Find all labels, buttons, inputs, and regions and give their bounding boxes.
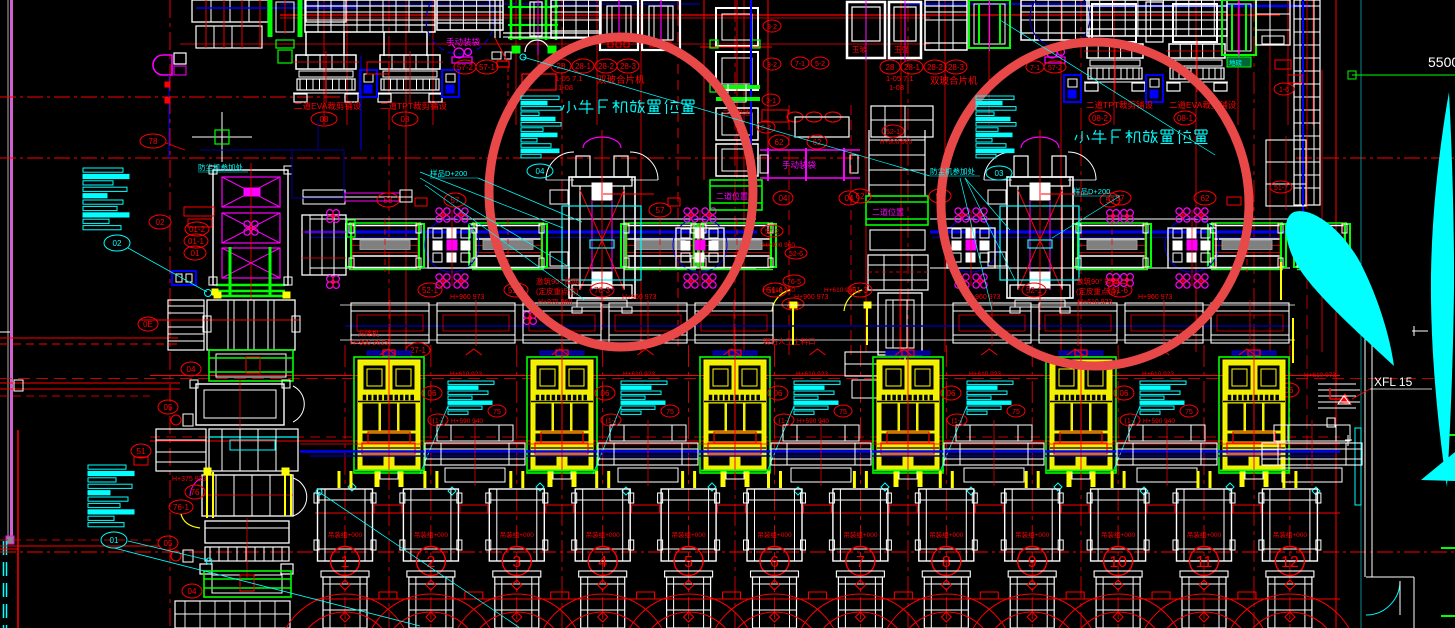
svg-text:(1-): (1-): [952, 418, 963, 425]
svg-text:10: 10: [1109, 554, 1127, 571]
svg-text:51-3: 51-3: [852, 286, 869, 295]
svg-text:1-08: 1-08: [558, 83, 573, 92]
svg-text:06: 06: [947, 389, 956, 398]
svg-text:5-2: 5-2: [815, 61, 825, 68]
svg-text:3-2: 3-2: [767, 62, 777, 69]
svg-text:75: 75: [839, 409, 847, 416]
svg-text:H+610 923: H+610 923: [450, 371, 482, 378]
svg-text:样品D+200: 样品D+200: [430, 168, 467, 178]
svg-text:28-3: 28-3: [620, 62, 637, 71]
svg-text:75: 75: [1185, 409, 1193, 416]
svg-text:H+610 923: H+610 923: [623, 371, 655, 378]
svg-text:02: 02: [113, 239, 122, 248]
svg-text:样品D+200: 样品D+200: [1073, 186, 1110, 196]
svg-text:28: 28: [886, 63, 895, 72]
svg-text:01: 01: [191, 249, 200, 258]
svg-text:08: 08: [320, 115, 329, 124]
svg-text:05: 05: [164, 403, 173, 412]
svg-text:(1-): (1-): [1125, 418, 1136, 425]
svg-text:08: 08: [401, 115, 410, 124]
svg-text:吊装组+000: 吊装组+000: [414, 530, 449, 539]
svg-text:3-2: 3-2: [767, 24, 777, 31]
svg-text:吊装组+000: 吊装组+000: [1015, 530, 1050, 539]
svg-text:62: 62: [813, 138, 822, 147]
svg-text:手动装袋: 手动装袋: [446, 37, 481, 47]
svg-text:06: 06: [428, 389, 437, 398]
svg-text:H+610 923: H+610 923: [1142, 371, 1174, 378]
svg-text:06: 06: [774, 389, 783, 398]
svg-text:51: 51: [137, 447, 146, 456]
svg-text:激筑90° 掉网: 激筑90° 掉网: [1076, 276, 1119, 286]
svg-text:手动装袋: 手动装袋: [782, 160, 817, 170]
svg-text:吊装组+000: 吊装组+000: [586, 530, 621, 539]
svg-text:01-2: 01-2: [189, 225, 206, 234]
svg-text:3-1: 3-1: [766, 98, 776, 105]
svg-text:H+960 973: H+960 973: [1138, 294, 1173, 301]
svg-text:二道位置: 二道位置: [716, 191, 748, 201]
svg-text:52-1: 52-1: [1026, 286, 1043, 295]
svg-text:62: 62: [856, 192, 865, 201]
svg-text:28-2: 28-2: [598, 62, 615, 71]
svg-text:52-1: 52-1: [422, 286, 439, 295]
svg-text:75: 75: [1012, 409, 1020, 416]
svg-text:76: 76: [191, 488, 200, 497]
svg-text:6: 6: [770, 554, 779, 571]
svg-text:1: 1: [341, 554, 350, 571]
svg-text:H+975 960: H+975 960: [538, 299, 573, 306]
svg-text:二道EVA裁剪铺设: 二道EVA裁剪铺设: [294, 101, 362, 111]
svg-text:吊装组+000: 吊装组+000: [843, 530, 878, 539]
svg-text:57: 57: [1116, 194, 1125, 203]
svg-text:8: 8: [942, 554, 951, 571]
svg-text:现右人工上料口: 现右人工上料口: [763, 336, 816, 346]
svg-text:08-1: 08-1: [1177, 114, 1194, 123]
svg-text:51-6: 51-6: [767, 286, 784, 295]
svg-text:激筑90° 掉网: 激筑90° 掉网: [536, 276, 579, 286]
svg-text:防尘机参加处: 防尘机参加处: [930, 166, 975, 176]
svg-text:28-1: 28-1: [575, 62, 592, 71]
svg-text:H+590 940: H+590 940: [451, 418, 483, 425]
svg-text:57-1: 57-1: [479, 63, 496, 72]
svg-text:1-08: 1-08: [889, 83, 904, 92]
svg-text:51-7: 51-7: [1274, 185, 1288, 192]
svg-text:H+610 923: H+610 923: [969, 371, 1001, 378]
svg-text:6-2: 6-2: [761, 125, 771, 132]
svg-text:吊装组+000: 吊装组+000: [1187, 530, 1222, 539]
svg-text:吊装组+000: 吊装组+000: [500, 530, 535, 539]
svg-text:XFL 15: XFL 15: [1374, 375, 1413, 389]
svg-text:3: 3: [512, 554, 521, 571]
svg-text:5500: 5500: [1428, 54, 1455, 70]
svg-text:62: 62: [775, 138, 784, 147]
svg-text:二道TPT裁剪铺设: 二道TPT裁剪铺设: [1086, 100, 1154, 110]
svg-text:52-6: 52-6: [789, 251, 803, 258]
svg-text:吊装组+000: 吊装组+000: [757, 530, 792, 539]
svg-text:06: 06: [601, 389, 610, 398]
svg-text:吊装组+000: 吊装组+000: [672, 530, 707, 539]
svg-text:二道TPT裁剪铺设: 二道TPT裁剪铺设: [380, 101, 448, 111]
svg-text:02: 02: [156, 218, 165, 227]
svg-text:玉强: 玉强: [894, 45, 909, 54]
svg-text:(1-): (1-): [433, 418, 444, 425]
svg-text:62: 62: [1201, 194, 1210, 203]
svg-text:1-05 7.1: 1-05 7.1: [555, 74, 583, 83]
svg-text:04: 04: [188, 587, 197, 596]
svg-text:(定皮重点情): (定皮重点情): [1076, 286, 1119, 296]
svg-text:57-2: 57-2: [1048, 65, 1062, 72]
svg-text:7-1: 7-1: [1030, 65, 1040, 72]
svg-text:27-1: 27-1: [410, 346, 427, 355]
svg-text:H+960 973: H+960 973: [450, 294, 485, 301]
svg-text:吊装组+000: 吊装组+000: [1273, 530, 1308, 539]
svg-text:11: 11: [1196, 554, 1213, 571]
svg-text:防尘机参加处: 防尘机参加处: [198, 162, 243, 172]
svg-text:二道EVA裁剪铺设: 二道EVA裁剪铺设: [1169, 100, 1237, 110]
svg-text:08-2: 08-2: [1092, 114, 1109, 123]
svg-text:28-1: 28-1: [904, 63, 921, 72]
svg-text:H+610 923: H+610 923: [1078, 299, 1113, 306]
svg-text:04: 04: [187, 365, 196, 374]
svg-text:升降机: 升降机: [358, 329, 379, 338]
svg-text:H+610 923: H+610 923: [796, 371, 828, 378]
svg-text:76-5: 76-5: [787, 279, 801, 286]
svg-text:1-05 7.1: 1-05 7.1: [886, 74, 914, 83]
svg-text:76-1: 76-1: [173, 503, 190, 512]
svg-text:(1-): (1-): [606, 418, 617, 425]
svg-text:05: 05: [164, 539, 173, 548]
svg-text:0E: 0E: [143, 320, 153, 329]
svg-text:9: 9: [1028, 554, 1037, 571]
svg-text:吊装组+000: 吊装组+000: [328, 530, 363, 539]
svg-text:(1-): (1-): [779, 418, 790, 425]
svg-text:H+900 2615: H+900 2615: [350, 340, 388, 347]
svg-text:04: 04: [779, 194, 788, 203]
svg-text:12: 12: [1281, 554, 1299, 571]
svg-text:H+610 973: H+610 973: [1304, 372, 1336, 379]
svg-text:28-3: 28-3: [948, 63, 965, 72]
svg-text:1-6: 1-6: [1279, 87, 1289, 94]
svg-text:01: 01: [110, 536, 119, 545]
svg-text:78: 78: [149, 137, 158, 146]
svg-text:二道位置: 二道位置: [872, 207, 904, 217]
svg-text:5: 5: [684, 554, 693, 571]
svg-text:06: 06: [1120, 389, 1129, 398]
svg-text:双玻合片机: 双玻合片机: [930, 75, 978, 87]
svg-text:28: 28: [557, 62, 566, 71]
svg-text:2: 2: [426, 554, 435, 571]
svg-text:7-1: 7-1: [795, 61, 805, 68]
svg-text:H+375 923: H+375 923: [172, 476, 207, 483]
svg-text:01-1: 01-1: [188, 237, 205, 246]
svg-text:57-2: 57-2: [457, 63, 474, 72]
svg-text:53: 53: [384, 196, 393, 205]
svg-text:4: 4: [598, 554, 607, 571]
svg-text:52-1: 52-1: [886, 129, 900, 136]
svg-text:H+900 960: H+900 960: [880, 139, 912, 146]
svg-text:H+900 960: H+900 960: [763, 242, 795, 249]
svg-text:75: 75: [666, 409, 674, 416]
svg-text:吊装组+000: 吊装组+000: [1101, 530, 1136, 539]
svg-text:吊装组+000: 吊装组+000: [929, 530, 964, 539]
svg-text:57: 57: [656, 206, 665, 215]
svg-text:H+960 973: H+960 973: [622, 294, 657, 301]
svg-text:28-2: 28-2: [927, 63, 944, 72]
svg-text:75: 75: [493, 409, 501, 416]
svg-text:地磅: 地磅: [1229, 58, 1243, 67]
svg-text:玉玻: 玉玻: [852, 44, 867, 54]
svg-text:H+590 940: H+590 940: [1143, 418, 1175, 425]
svg-text:03: 03: [995, 169, 1004, 178]
svg-text:H+590 940: H+590 940: [797, 418, 829, 425]
svg-text:76-3: 76-3: [594, 286, 611, 295]
svg-text:50-2: 50-2: [765, 229, 779, 236]
svg-text:7: 7: [856, 554, 865, 571]
svg-text:双玻合片机: 双玻合片机: [597, 74, 645, 86]
svg-text:H+960 973: H+960 973: [794, 294, 829, 301]
svg-text:04: 04: [536, 167, 545, 176]
